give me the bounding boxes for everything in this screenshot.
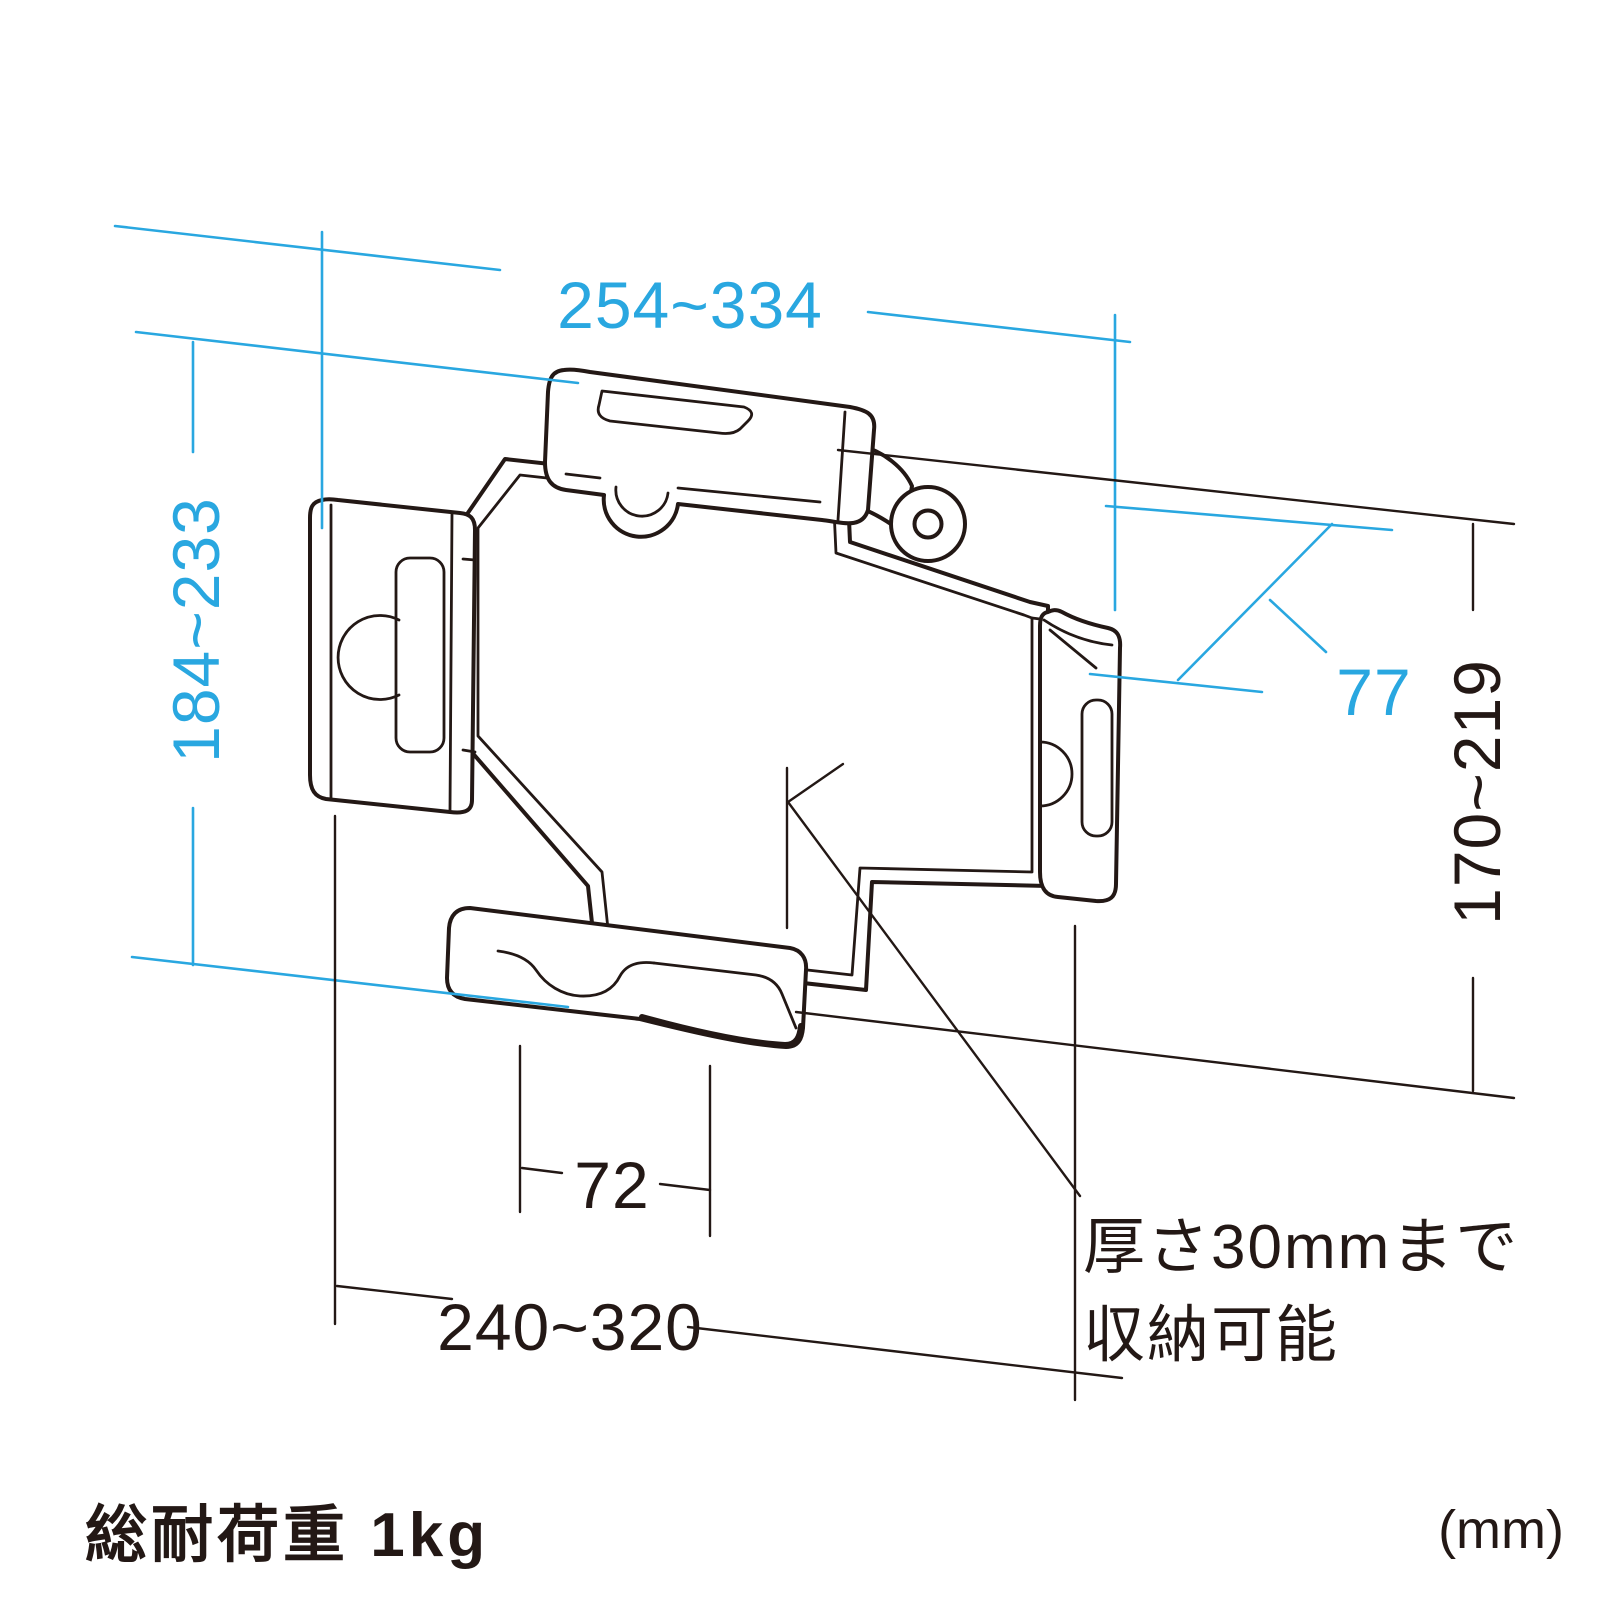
right-height-ext-bottom [796,1012,1514,1098]
thickness-note-line2: 収納可能 [1083,1301,1339,1370]
unit-label: (mm) [1438,1500,1564,1560]
roller-hole [915,511,942,538]
slot-width-dim-line-left [522,1168,562,1173]
slot-width-value: 72 [574,1148,649,1222]
dimension-slot-width: 72 [520,1046,710,1236]
dimension-depth: 77 [1090,506,1412,729]
tablet-holder-technical-drawing: 254~334 184~233 77 170~219 [0,0,1600,1600]
right-clamp [1040,610,1120,901]
left-clamp [310,499,475,812]
depth-ext-upper [1106,506,1392,530]
top-width-value: 254~334 [557,268,823,342]
left-height-ext-top [136,332,578,383]
diagram-canvas: 254~334 184~233 77 170~219 [0,0,1600,1600]
slot-width-dim-line-right [660,1184,710,1190]
bottom-width-dim-line-left [337,1286,452,1299]
tablet-holder-object [310,370,1120,1047]
depth-dim-line [1178,524,1332,680]
load-capacity-label: 総耐荷重 1kg [85,1501,489,1570]
bottom-width-value: 240~320 [437,1290,703,1364]
bottom-width-dim-line-right [688,1327,1122,1378]
depth-leader [1270,600,1326,652]
top-width-dim-line-right [868,312,1130,342]
right-height-value: 170~219 [1440,659,1514,925]
left-height-value: 184~233 [159,497,233,763]
text-notes: 厚さ30mmまで 収納可能 総耐荷重 1kg (mm) [85,1213,1564,1570]
depth-value: 77 [1336,655,1411,729]
thickness-note-line1: 厚さ30mmまで [1083,1213,1519,1282]
left-clamp-fold-line [450,514,452,810]
top-width-dim-line-left [115,226,500,270]
